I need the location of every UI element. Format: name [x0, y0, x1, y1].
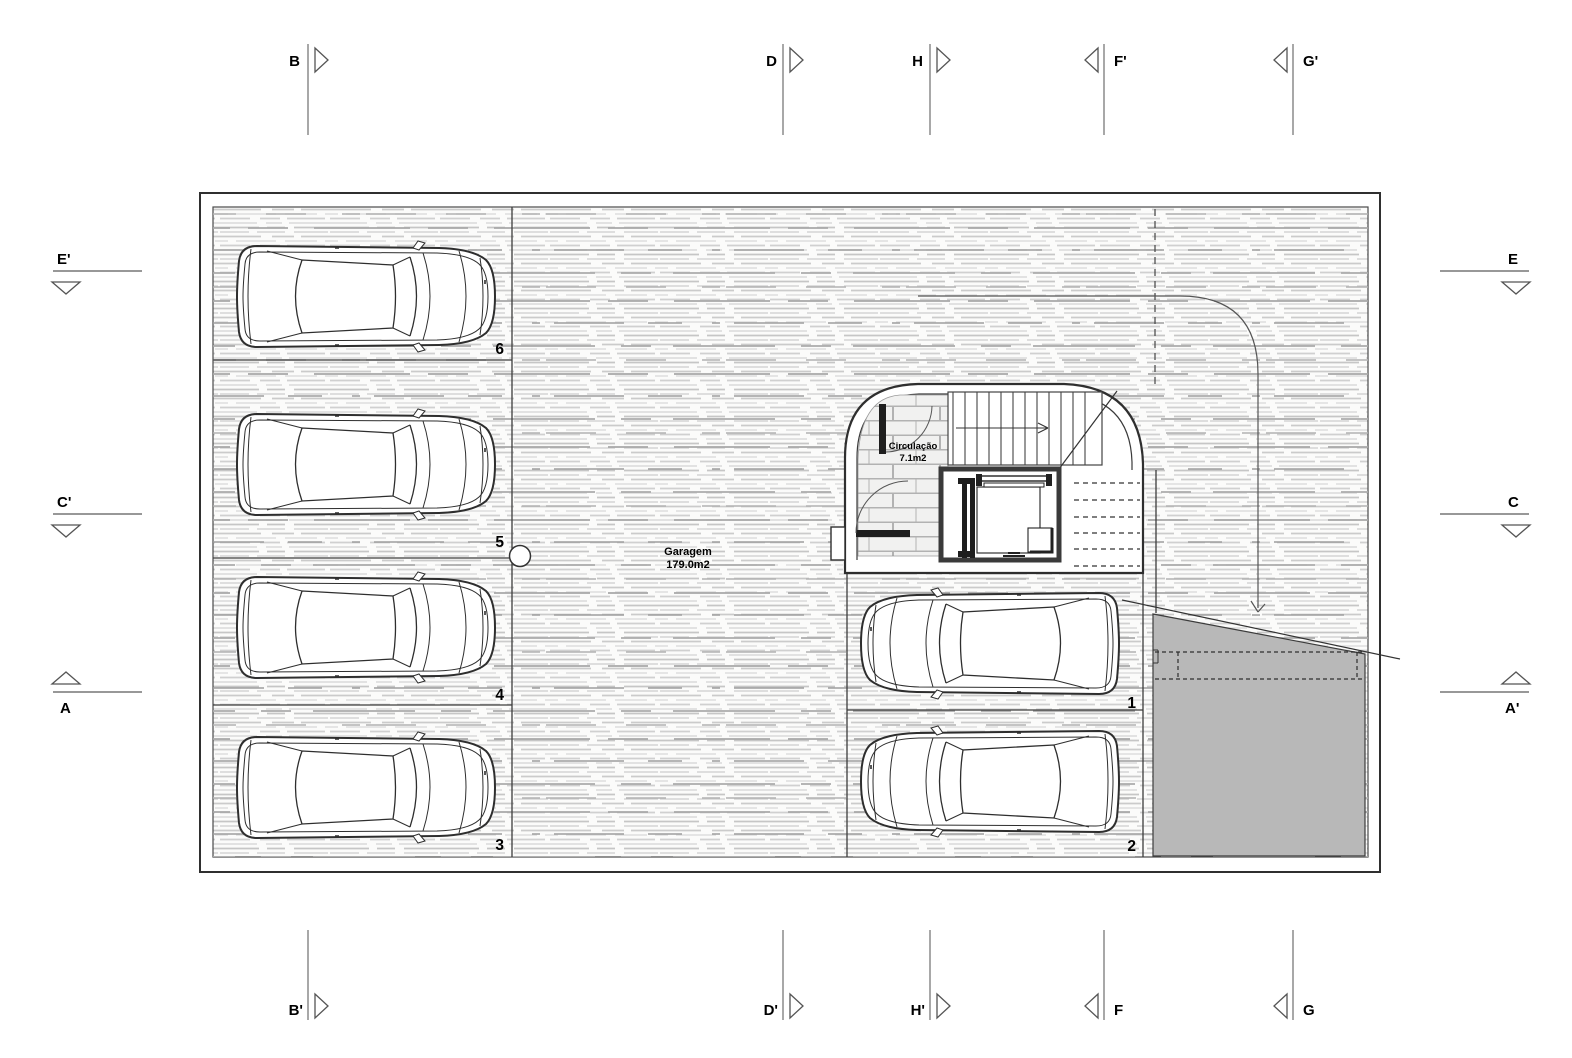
section-marker-G-prime: G'	[1274, 44, 1318, 135]
garage-area: 179.0m2	[666, 559, 709, 571]
section-label: D	[766, 53, 777, 70]
section-arrow-icon	[1085, 994, 1098, 1018]
section-label: G	[1303, 1002, 1315, 1019]
circulation-name: Circulação	[889, 441, 938, 452]
section-label: G'	[1303, 53, 1318, 70]
car-space-2	[861, 726, 1119, 837]
section-label: F'	[1114, 53, 1127, 70]
floor-plan-page: 6 5 4 3 1 2 Garagem 179.0m2	[0, 0, 1572, 1058]
section-arrow-icon	[1085, 48, 1098, 72]
garage-name: Garagem	[664, 546, 712, 558]
section-marker-G: G	[1274, 930, 1315, 1020]
door-leaf-lower	[856, 530, 910, 537]
section-arrow-icon	[52, 282, 80, 294]
section-marker-A: A	[52, 672, 142, 717]
section-arrow-icon	[790, 994, 803, 1018]
section-arrow-icon	[937, 994, 950, 1018]
parking-number-2: 2	[1127, 838, 1136, 855]
elevator	[941, 469, 1059, 560]
section-label: E	[1508, 251, 1518, 268]
section-label: E'	[57, 251, 71, 268]
section-label: B'	[289, 1002, 303, 1019]
section-marker-H-prime: H'	[911, 930, 950, 1020]
car-space-4	[237, 572, 495, 683]
section-arrow-icon	[1502, 525, 1530, 537]
parking-number-6: 6	[495, 341, 504, 358]
section-label: C	[1508, 494, 1519, 511]
elevator-counterweight	[1028, 528, 1052, 552]
section-label: H	[912, 53, 923, 70]
section-label: H'	[911, 1002, 925, 1019]
section-label: C'	[57, 494, 71, 511]
section-arrow-icon	[52, 525, 80, 537]
garage-room-label: Garagem 179.0m2	[664, 546, 712, 571]
section-marker-C: C	[1440, 494, 1530, 537]
section-marker-F-prime: F'	[1085, 44, 1127, 135]
section-marker-H: H	[912, 44, 950, 135]
section-marker-C-prime: C'	[52, 494, 142, 537]
circulation-area: 7.1m2	[900, 453, 927, 464]
section-arrow-icon	[1274, 48, 1287, 72]
elevator-door-unit	[976, 474, 1052, 487]
section-marker-B: B	[289, 44, 328, 135]
section-arrow-icon	[1502, 282, 1530, 294]
section-marker-D-prime: D'	[764, 930, 803, 1020]
floor-plan-canvas: 6 5 4 3 1 2 Garagem 179.0m2	[0, 0, 1572, 1058]
column	[510, 546, 531, 567]
parking-number-4: 4	[495, 687, 504, 704]
stair-core: Circulação 7.1m2	[831, 384, 1143, 573]
section-marker-E-prime: E'	[52, 251, 142, 294]
section-arrow-icon	[52, 672, 80, 684]
core-wall-jog	[831, 527, 845, 560]
section-marker-D: D	[766, 44, 803, 135]
car-space-3	[237, 732, 495, 843]
section-label: A'	[1505, 700, 1519, 717]
section-label: F	[1114, 1002, 1123, 1019]
parking-number-3: 3	[495, 837, 504, 854]
section-arrow-icon	[315, 994, 328, 1018]
ramp-slab	[1153, 614, 1365, 856]
parking-number-5: 5	[495, 534, 504, 551]
section-arrow-icon	[1502, 672, 1530, 684]
car-space-5	[237, 409, 495, 520]
parking-number-1: 1	[1127, 695, 1136, 712]
section-marker-E: E	[1440, 251, 1530, 294]
section-marker-A-prime: A'	[1440, 672, 1530, 717]
section-marker-F: F	[1085, 930, 1123, 1020]
car-space-6	[237, 241, 495, 352]
section-arrow-icon	[937, 48, 950, 72]
section-label: B	[289, 53, 300, 70]
garage-plan: 6 5 4 3 1 2 Garagem 179.0m2	[200, 193, 1400, 872]
section-marker-B-prime: B'	[289, 930, 328, 1020]
section-label: A	[60, 700, 71, 717]
section-label: D'	[764, 1002, 778, 1019]
section-arrow-icon	[315, 48, 328, 72]
car-space-1	[861, 588, 1119, 699]
stair-flight	[948, 391, 1117, 469]
section-arrow-icon	[790, 48, 803, 72]
door-leaf-upper	[879, 404, 886, 454]
section-arrow-icon	[1274, 994, 1287, 1018]
